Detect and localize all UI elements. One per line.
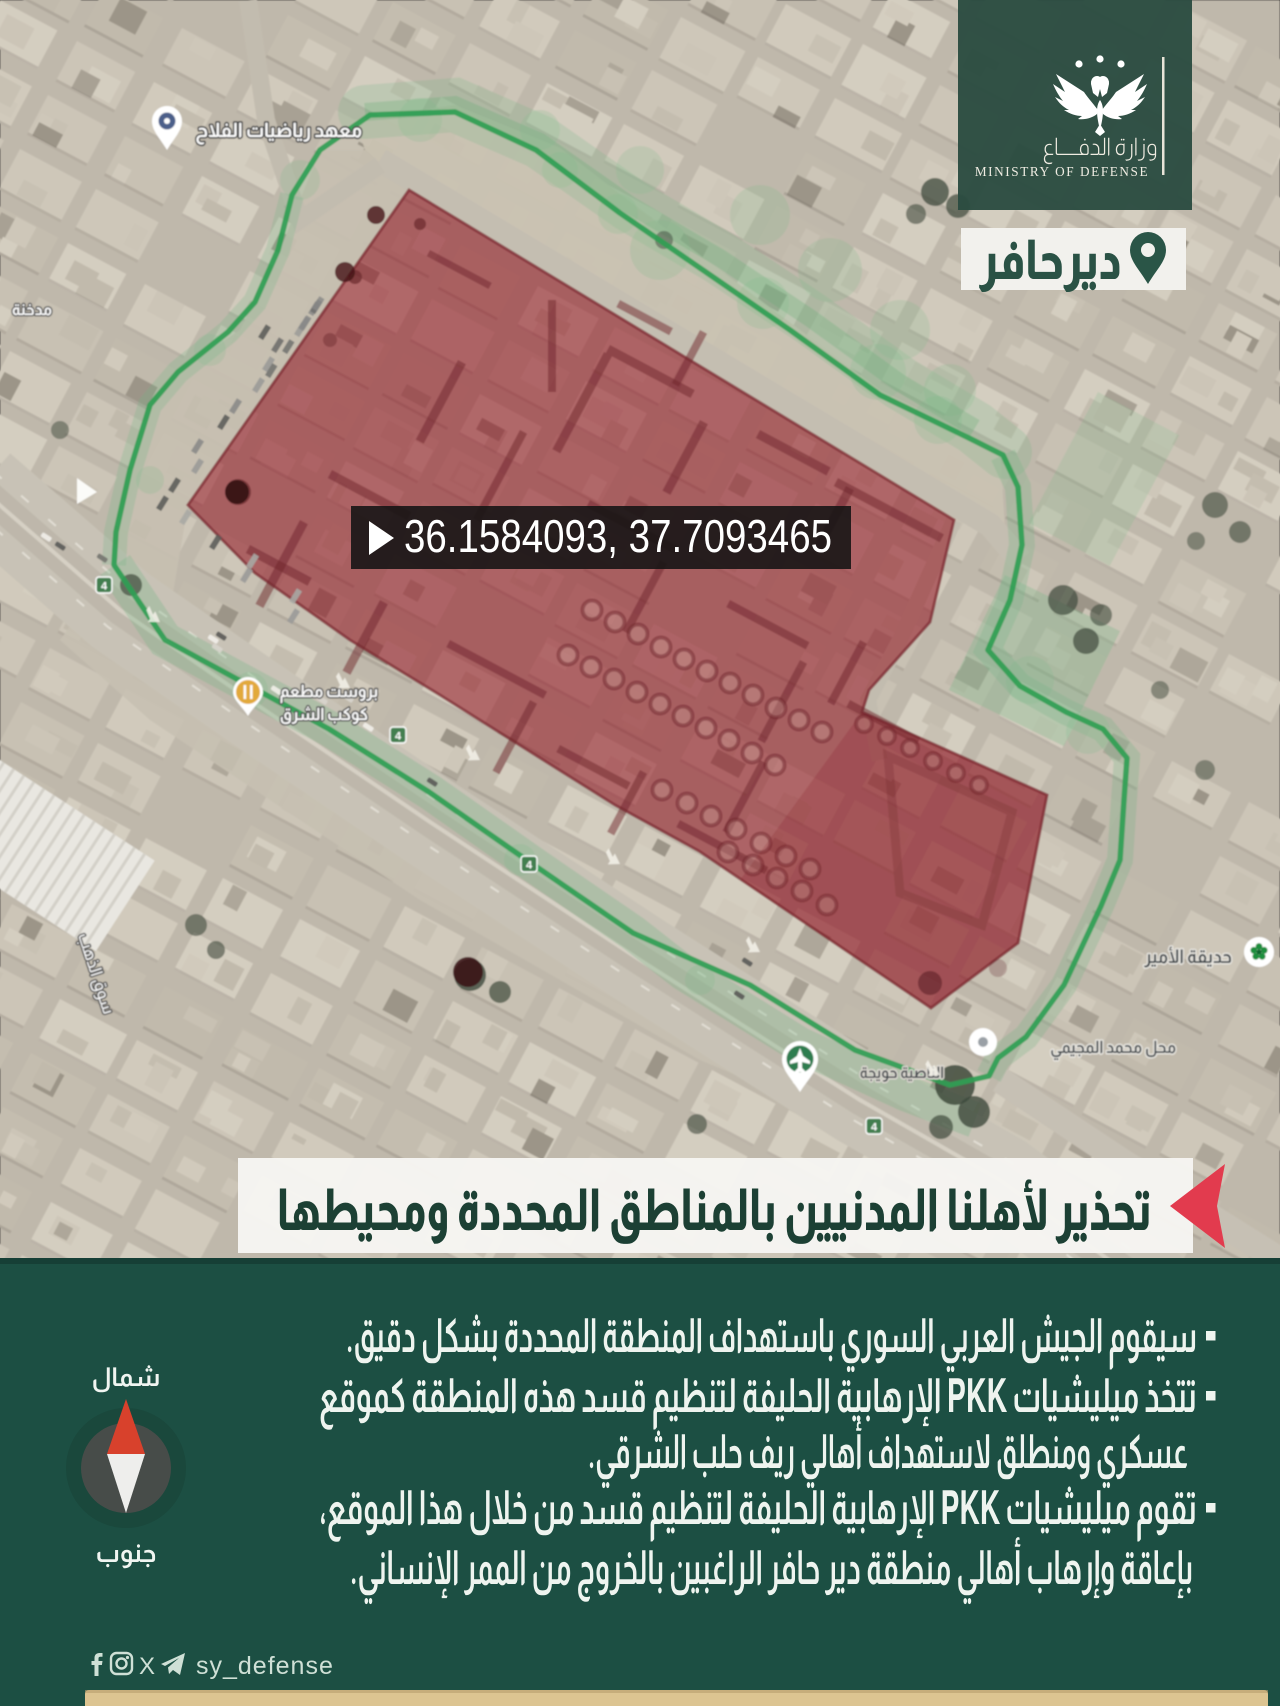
svg-text:36.1584093, 37.7093465: 36.1584093, 37.7093465 xyxy=(404,510,832,562)
svg-text:4: 4 xyxy=(101,581,108,593)
svg-text:MINISTRY OF DEFENSE: MINISTRY OF DEFENSE xyxy=(975,164,1149,179)
svg-text:sy_defense: sy_defense xyxy=(196,1652,334,1680)
svg-text:4: 4 xyxy=(526,860,533,872)
svg-text:X: X xyxy=(139,1653,155,1680)
svg-text:4: 4 xyxy=(395,731,402,743)
svg-text:4: 4 xyxy=(871,1122,878,1134)
